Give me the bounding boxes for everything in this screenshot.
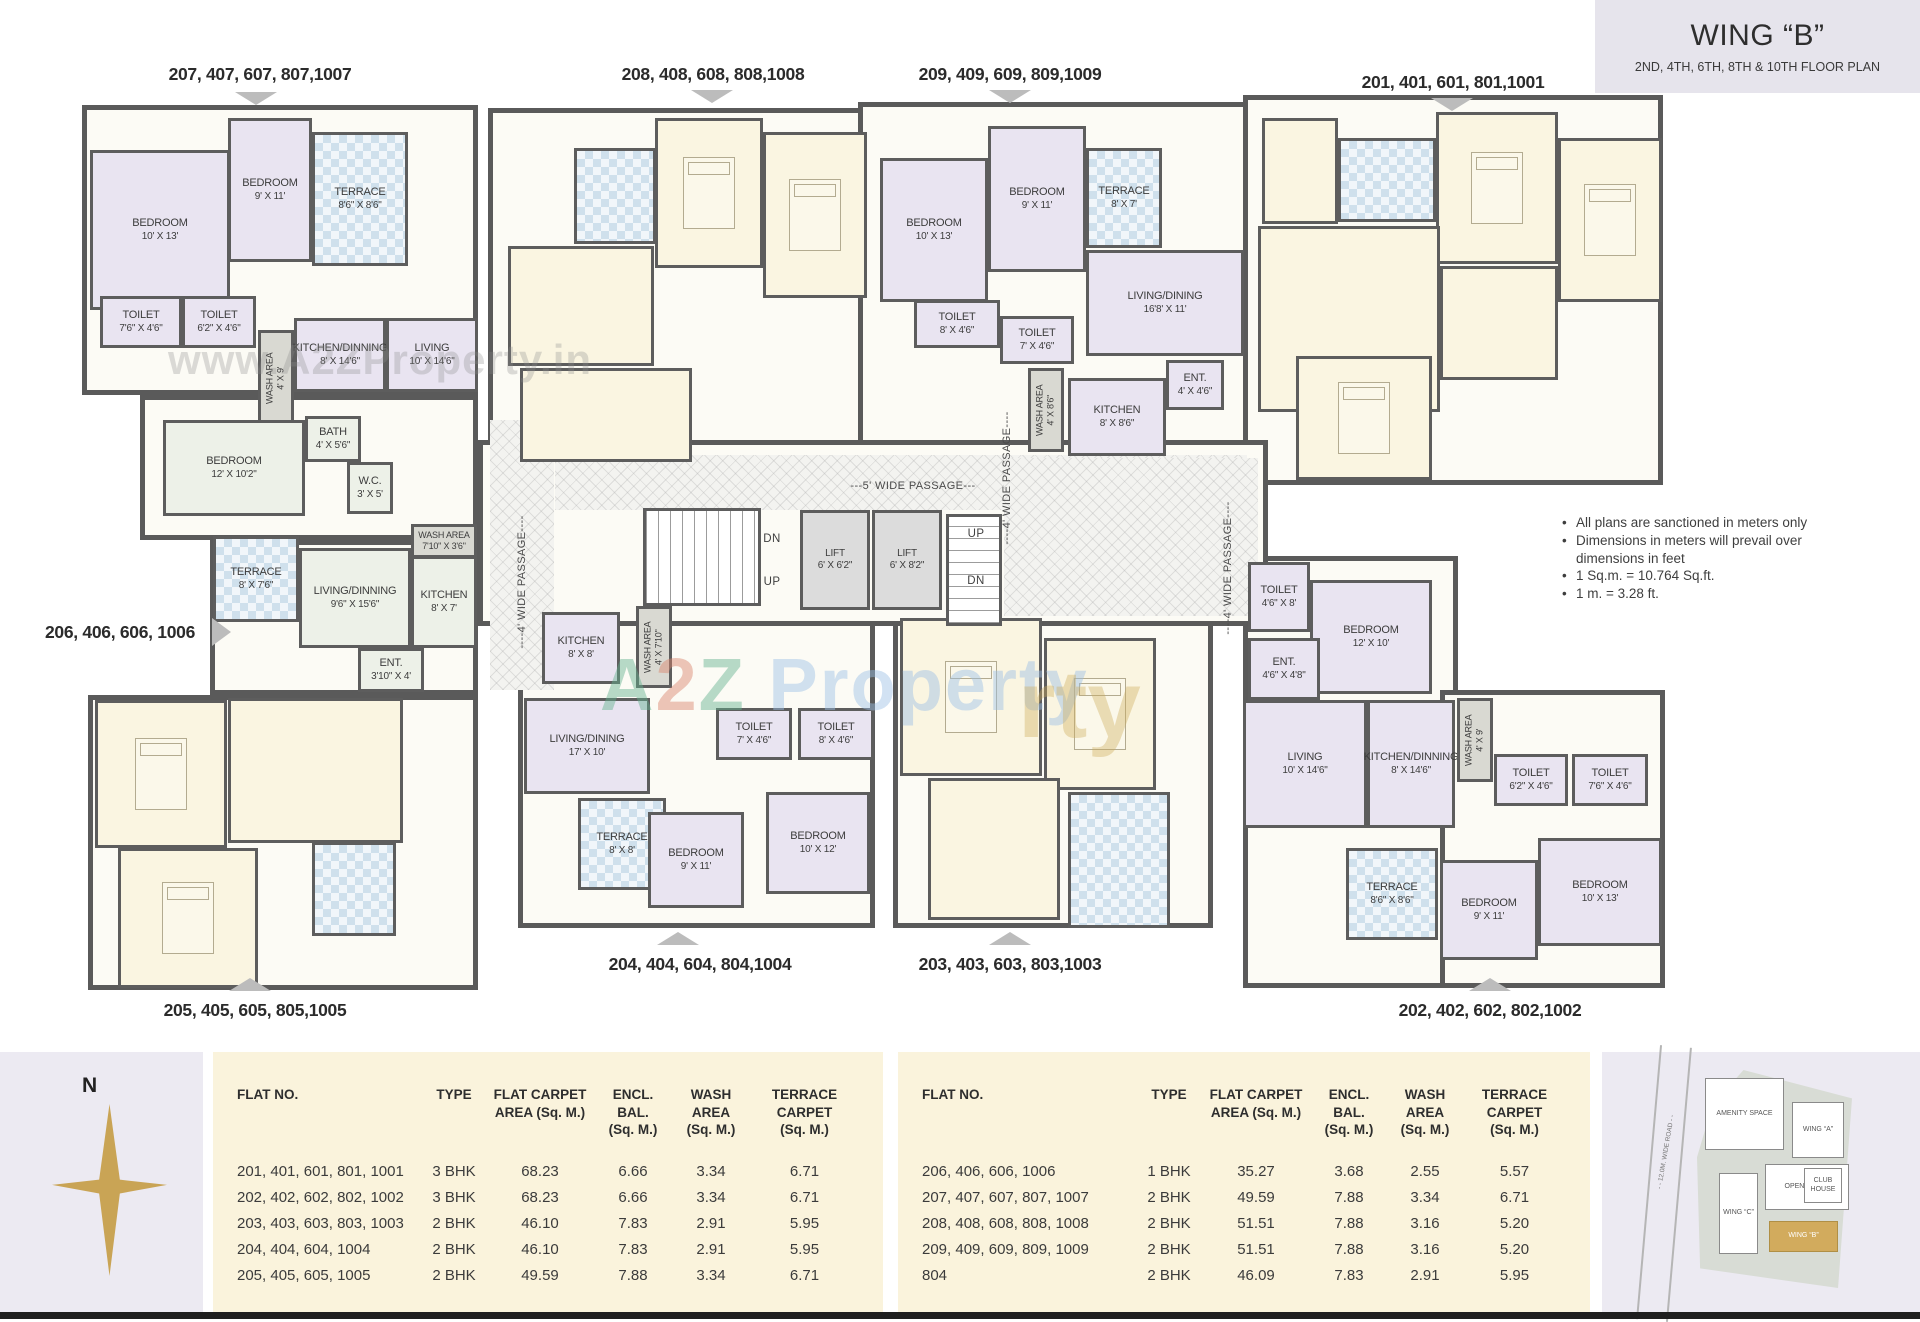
kitchen-202-name: KITCHEN/DINNING	[1364, 751, 1459, 765]
site-road-label: - - 12.0M. WIDE ROAD - -	[1656, 1119, 1675, 1189]
table-header-0: FLAT NO.	[922, 1086, 1137, 1124]
washarea-209-name: WASH AREA	[1035, 384, 1046, 435]
table-cell-r3-c5: 5.95	[750, 1237, 859, 1263]
toilet-209-2: TOILET7' X 4'6"	[1000, 316, 1074, 364]
room-203-3	[928, 778, 1060, 920]
terrace-202-label: TERRACE8'6" X 8'6"	[1366, 881, 1417, 907]
note-line-3: •1 Sq.m. = 10.764 Sq.ft.	[1562, 567, 1902, 585]
terrace-206: TERRACE8' X 7'6"	[213, 536, 299, 622]
table-cell-r0-c5: 5.57	[1463, 1159, 1566, 1185]
bedroom-204-1-label: BEDROOM9' X 11'	[668, 847, 723, 873]
kitchen-206-dim: 8' X 7'	[421, 603, 468, 616]
table-cell-r4-c0: 205, 405, 605, 1005	[237, 1263, 422, 1289]
room-208-1	[655, 118, 763, 268]
table-cell-r2-c1: 2 BHK	[1137, 1211, 1201, 1237]
living-209-dim: 16'8' X 11'	[1127, 304, 1202, 317]
unit-207-arrow-icon	[235, 92, 277, 105]
washarea-206: WASH AREA7'10" X 3'6"	[411, 524, 477, 558]
page-subtitle: 2ND, 4TH, 6TH, 8TH & 10TH FLOOR PLAN	[1635, 60, 1880, 74]
kitchen-202: KITCHEN/DINNING8' X 14'6"	[1367, 700, 1455, 828]
kitchen-204-name: KITCHEN	[558, 635, 605, 649]
bath-206-label: BATH4' X 5'6"	[316, 426, 350, 452]
table-cell-r2-c5: 5.95	[750, 1211, 859, 1237]
bedroom-202-2-dim: 9' X 11'	[1461, 911, 1516, 924]
table-cell-r2-c4: 2.91	[672, 1211, 750, 1237]
toilet-209-2-label: TOILET7' X 4'6"	[1018, 327, 1055, 353]
passage-4ft-right-label: ----4' WIDE PASSAGE----	[1222, 501, 1234, 634]
table-cell-r3-c1: 2 BHK	[422, 1237, 486, 1263]
toilet-202-2-label: TOILET6'2" X 4'6"	[1509, 767, 1552, 793]
terrace-208	[574, 148, 656, 244]
site-road: - - 12.0M. WIDE ROAD - -	[1636, 1045, 1692, 1322]
unit-204-label: 204, 404, 604, 804,1004	[609, 954, 792, 975]
table-cell-r1-c1: 3 BHK	[422, 1185, 486, 1211]
kitchen-206-label: KITCHEN8' X 7'	[421, 589, 468, 615]
room-201-1	[1436, 112, 1558, 264]
living-206-label: LIVING/DINNING9'6" X 15'6"	[314, 585, 397, 611]
lift-1-dim: 6' X 6'2"	[818, 560, 852, 573]
table-header-2: FLAT CARPET AREA (Sq. M.)	[1201, 1086, 1311, 1141]
washarea-206-name: WASH AREA	[418, 530, 469, 541]
unit-205-arrow-icon	[229, 978, 271, 991]
ent-202-dim: 4'6" X 4'8"	[1262, 670, 1305, 683]
bed-icon	[1584, 184, 1636, 256]
table-cell-r0-c3: 3.68	[1311, 1159, 1387, 1185]
table-cell-r1-c5: 6.71	[1463, 1185, 1566, 1211]
wc-206-label: W.C.3' X 5'	[357, 475, 383, 501]
unit-209-arrow-icon	[989, 90, 1031, 103]
flat-table-right: FLAT NO.TYPEFLAT CARPET AREA (Sq. M.)ENC…	[898, 1052, 1590, 1289]
table-cell-r1-c0: 202, 402, 602, 802, 1002	[237, 1185, 422, 1211]
compass-star-icon	[52, 1104, 167, 1276]
table-cell-r3-c0: 204, 404, 604, 1004	[237, 1237, 422, 1263]
bath-206: BATH4' X 5'6"	[305, 416, 361, 462]
bed-icon	[162, 882, 214, 954]
bedroom-209-1-dim: 10' X 13'	[906, 231, 961, 244]
table-cell-r2-c5: 5.20	[1463, 1211, 1566, 1237]
table-cell-r4-c4: 3.34	[672, 1263, 750, 1289]
stairs-left	[643, 508, 761, 606]
site-amenity-space: AMENITY SPACE	[1705, 1078, 1784, 1150]
site-wing-c: WING “C”	[1719, 1173, 1758, 1254]
ent-206: ENT.3'10" X 4'	[358, 648, 424, 692]
table-cell-r4-c3: 7.88	[594, 1263, 672, 1289]
toilet-202-1: TOILET4'6" X 8'	[1248, 562, 1310, 632]
bedroom-209-1: BEDROOM10' X 13'	[880, 158, 988, 302]
table-cell-r0-c1: 1 BHK	[1137, 1159, 1201, 1185]
unit-207-label: 207, 407, 607, 807,1007	[169, 64, 352, 85]
site-map-panel: - - 12.0M. WIDE ROAD - - AMENITY SPACE W…	[1602, 1052, 1920, 1312]
lift-1: LIFT6' X 6'2"	[800, 510, 870, 610]
flat-table-right-panel: FLAT NO.TYPEFLAT CARPET AREA (Sq. M.)ENC…	[898, 1052, 1590, 1312]
wc-206-name: W.C.	[357, 475, 383, 489]
table-cell-r0-c1: 3 BHK	[422, 1159, 486, 1185]
room-208-3	[508, 246, 654, 366]
bedroom-209-2-name: BEDROOM	[1009, 186, 1064, 200]
room-205-2	[118, 848, 258, 988]
table-cell-r1-c1: 2 BHK	[1137, 1185, 1201, 1211]
living-209-name: LIVING/DINING	[1127, 290, 1202, 304]
toilet-204-2-dim: 8' X 4'6"	[817, 735, 854, 748]
bedroom-204-2-label: BEDROOM10' X 12'	[790, 830, 845, 856]
terrace-209-label: TERRACE8' X 7'	[1098, 185, 1149, 211]
terrace-202-name: TERRACE	[1366, 881, 1417, 895]
bedroom-207-2-label: BEDROOM9' X 11'	[242, 177, 297, 203]
table-header-4: WASH AREA (Sq. M.)	[672, 1086, 750, 1159]
room-201-0	[1262, 118, 1338, 224]
toilet-202-2-dim: 6'2" X 4'6"	[1509, 781, 1552, 794]
terrace-204-dim: 8' X 8'	[596, 845, 647, 858]
unit-208-arrow-icon	[691, 90, 733, 103]
table-cell-r3-c0: 209, 409, 609, 809, 1009	[922, 1237, 1137, 1263]
bedroom-209-2-label: BEDROOM9' X 11'	[1009, 186, 1064, 212]
table-cell-r1-c4: 3.34	[672, 1185, 750, 1211]
room-203-1	[900, 618, 1042, 776]
toilet-202-1-label: TOILET4'6" X 8'	[1260, 584, 1297, 610]
toilet-202-3-dim: 7'6" X 4'6"	[1588, 781, 1631, 794]
passage-5ft-label: ---5' WIDE PASSAGE---	[850, 480, 975, 492]
table-cell-r4-c3: 7.83	[1311, 1263, 1387, 1289]
lift-2-name: LIFT	[890, 548, 924, 561]
bedroom-207-2: BEDROOM9' X 11'	[228, 118, 312, 262]
room-205-1	[95, 700, 227, 848]
stairs-dn-right: DN	[967, 575, 984, 587]
flat-table-left: FLAT NO.TYPEFLAT CARPET AREA (Sq. M.)ENC…	[213, 1052, 883, 1289]
bed-icon	[1074, 678, 1126, 750]
stairs-up-right: UP	[968, 528, 985, 540]
bedroom-204-2: BEDROOM10' X 12'	[766, 792, 870, 894]
kitchen-202-label: KITCHEN/DINNING8' X 14'6"	[1364, 751, 1459, 777]
toilet-204-1-label: TOILET7' X 4'6"	[735, 721, 772, 747]
bedroom-207-1-name: BEDROOM	[132, 217, 187, 231]
living-207-label: LIVING10' X 14'6"	[409, 342, 454, 368]
terrace-207-label: TERRACE8'6" X 8'6"	[334, 186, 385, 212]
ent-206-label: ENT.3'10" X 4'	[371, 657, 411, 683]
compass-north-label: N	[82, 1074, 97, 1098]
lift-1-name: LIFT	[818, 548, 852, 561]
table-header-1: TYPE	[1137, 1086, 1201, 1124]
kitchen-207-dim: 8' X 14'6"	[293, 356, 388, 369]
ent-206-dim: 3'10" X 4'	[371, 671, 411, 684]
table-cell-r2-c0: 208, 408, 608, 808, 1008	[922, 1211, 1137, 1237]
washarea-202: WASH AREA4' X 9'	[1457, 698, 1493, 782]
toilet-207-2-dim: 6'2" X 4'6"	[197, 323, 240, 336]
living-204: LIVING/DINING17' X 10'	[524, 698, 650, 794]
ent-209-dim: 4' X 4'6"	[1178, 386, 1212, 399]
toilet-204-1-dim: 7' X 4'6"	[735, 735, 772, 748]
toilet-202-3-name: TOILET	[1588, 767, 1631, 781]
table-cell-r4-c1: 2 BHK	[422, 1263, 486, 1289]
note-bullet: •	[1562, 532, 1576, 550]
terrace-207-name: TERRACE	[334, 186, 385, 200]
terrace-206-name: TERRACE	[230, 566, 281, 580]
note-text: All plans are sanctioned in meters only	[1576, 514, 1807, 532]
toilet-204-1: TOILET7' X 4'6"	[716, 708, 792, 760]
lift-2: LIFT6' X 8'2"	[872, 510, 942, 610]
bedroom-204-2-name: BEDROOM	[790, 830, 845, 844]
toilet-209-1-name: TOILET	[938, 311, 975, 325]
terrace-207: TERRACE8'6" X 8'6"	[312, 132, 408, 266]
kitchen-202-dim: 8' X 14'6"	[1364, 765, 1459, 778]
toilet-202-2: TOILET6'2" X 4'6"	[1494, 754, 1568, 806]
living-202-label: LIVING10' X 14'6"	[1282, 751, 1327, 777]
table-cell-r3-c4: 2.91	[672, 1237, 750, 1263]
site-wing-a: WING “A”	[1792, 1102, 1844, 1158]
toilet-204-2-name: TOILET	[817, 721, 854, 735]
table-cell-r1-c2: 68.23	[486, 1185, 594, 1211]
table-cell-r1-c0: 207, 407, 607, 807, 1007	[922, 1185, 1137, 1211]
room-201-4	[1440, 266, 1558, 380]
bath-206-dim: 4' X 5'6"	[316, 440, 350, 453]
bed-icon	[789, 179, 841, 251]
terrace-205	[312, 842, 396, 936]
table-cell-r0-c2: 35.27	[1201, 1159, 1311, 1185]
living-207-dim: 10' X 14'6"	[409, 356, 454, 369]
bedroom-207-1-label: BEDROOM10' X 13'	[132, 217, 187, 243]
toilet-207-2-name: TOILET	[197, 309, 240, 323]
table-cell-r0-c0: 206, 406, 606, 1006	[922, 1159, 1137, 1185]
table-header-1: TYPE	[422, 1086, 486, 1124]
terrace-206-label: TERRACE8' X 7'6"	[230, 566, 281, 592]
table-cell-r2-c4: 3.16	[1387, 1211, 1463, 1237]
terrace-203	[1068, 792, 1170, 928]
toilet-204-2: TOILET8' X 4'6"	[798, 708, 874, 760]
unit-206-label: 206, 406, 606, 1006	[45, 622, 195, 643]
table-cell-r2-c3: 7.88	[1311, 1211, 1387, 1237]
bedroom-202-2-name: BEDROOM	[1461, 897, 1516, 911]
ent-209-label: ENT.4' X 4'6"	[1178, 372, 1212, 398]
bedroom-207-2-name: BEDROOM	[242, 177, 297, 191]
table-cell-r2-c1: 2 BHK	[422, 1211, 486, 1237]
note-line-4: •1 m. = 3.28 ft.	[1562, 585, 1902, 603]
unit-204-arrow-icon	[657, 932, 699, 945]
toilet-209-1-label: TOILET8' X 4'6"	[938, 311, 975, 337]
living-209-label: LIVING/DINING16'8' X 11'	[1127, 290, 1202, 316]
living-206-dim: 9'6" X 15'6"	[314, 599, 397, 612]
washarea-202-label: WASH AREA4' X 9'	[1464, 714, 1487, 765]
table-cell-r3-c5: 5.20	[1463, 1237, 1566, 1263]
toilet-204-1-name: TOILET	[735, 721, 772, 735]
table-cell-r0-c3: 6.66	[594, 1159, 672, 1185]
toilet-207-2: TOILET6'2" X 4'6"	[182, 296, 256, 348]
note-text: dimensions in feet	[1562, 550, 1685, 568]
note-text: 1 m. = 3.28 ft.	[1576, 585, 1659, 603]
washarea-206-label: WASH AREA7'10" X 3'6"	[418, 530, 469, 553]
kitchen-206-name: KITCHEN	[421, 589, 468, 603]
living-209: LIVING/DINING16'8' X 11'	[1086, 250, 1244, 356]
table-cell-r1-c3: 6.66	[594, 1185, 672, 1211]
note-text: Dimensions in meters will prevail over	[1576, 532, 1802, 550]
bottom-border-bar	[0, 1312, 1920, 1319]
kitchen-209-name: KITCHEN	[1094, 404, 1141, 418]
table-cell-r1-c5: 6.71	[750, 1185, 859, 1211]
living-202-dim: 10' X 14'6"	[1282, 765, 1327, 778]
bed-icon	[1471, 152, 1523, 224]
note-text: 1 Sq.m. = 10.764 Sq.ft.	[1576, 567, 1714, 585]
ent-202-label: ENT.4'6" X 4'8"	[1262, 656, 1305, 682]
bedroom-209-1-name: BEDROOM	[906, 217, 961, 231]
terrace-201	[1338, 138, 1436, 222]
bed-icon	[1338, 382, 1390, 454]
washarea-204: WASH AREA4' X 7'10"	[636, 606, 672, 688]
toilet-209-2-name: TOILET	[1018, 327, 1055, 341]
bedroom-206-label: BEDROOM12' X 10'2"	[206, 455, 261, 481]
terrace-209: TERRACE8' X 7'	[1086, 148, 1162, 248]
table-cell-r2-c2: 51.51	[1201, 1211, 1311, 1237]
toilet-202-1-dim: 4'6" X 8'	[1260, 598, 1297, 611]
bedroom-204-2-dim: 10' X 12'	[790, 844, 845, 857]
kitchen-208	[520, 368, 692, 462]
table-header-0: FLAT NO.	[237, 1086, 422, 1124]
living-202: LIVING10' X 14'6"	[1243, 700, 1367, 828]
living-206: LIVING/DINNING9'6" X 15'6"	[299, 548, 411, 648]
site-club-house: CLUB HOUSE	[1804, 1168, 1842, 1203]
table-cell-r3-c1: 2 BHK	[1137, 1237, 1201, 1263]
kitchen-207-name: KITCHEN/DINNING	[293, 342, 388, 356]
washarea-207-name: WASH AREA	[265, 352, 276, 403]
living-204-label: LIVING/DINING17' X 10'	[549, 733, 624, 759]
bedroom-206-name: BEDROOM	[206, 455, 261, 469]
bedroom-206: BEDROOM12' X 10'2"	[163, 420, 305, 516]
unit-202-label: 202, 402, 602, 802,1002	[1399, 1000, 1582, 1021]
kitchen-209-dim: 8' X 8'6"	[1094, 418, 1141, 431]
bedroom-207-2-dim: 9' X 11'	[242, 191, 297, 204]
bedroom-202-1-dim: 12' X 10'	[1343, 638, 1398, 651]
unit-203-arrow-icon	[989, 932, 1031, 945]
kitchen-209: KITCHEN8' X 8'6"	[1068, 378, 1166, 456]
table-header-5: TERRACE CARPET (Sq. M.)	[750, 1086, 859, 1159]
room-201-5	[1296, 356, 1432, 480]
kitchen-204-dim: 8' X 8'	[558, 649, 605, 662]
living-207-name: LIVING	[409, 342, 454, 356]
table-cell-r3-c3: 7.83	[594, 1237, 672, 1263]
bed-icon	[135, 738, 187, 810]
bath-206-name: BATH	[316, 426, 350, 440]
unit-206-arrow-icon	[212, 618, 231, 646]
living-202-name: LIVING	[1282, 751, 1327, 765]
bedroom-202-2-label: BEDROOM9' X 11'	[1461, 897, 1516, 923]
washarea-209: WASH AREA4' X 8'6"	[1028, 368, 1064, 452]
hatch-passage-right	[1004, 458, 1258, 616]
wc-206-dim: 3' X 5'	[357, 489, 383, 502]
unit-208-label: 208, 408, 608, 808,1008	[622, 64, 805, 85]
note-bullet: •	[1562, 585, 1576, 603]
washarea-209-label: WASH AREA4' X 8'6"	[1035, 384, 1058, 435]
washarea-204-name: WASH AREA	[643, 621, 654, 672]
compass-panel: N	[0, 1052, 203, 1312]
bedroom-202-1-label: BEDROOM12' X 10'	[1343, 624, 1398, 650]
toilet-202-3: TOILET7'6" X 4'6"	[1572, 754, 1648, 806]
toilet-202-3-label: TOILET7'6" X 4'6"	[1588, 767, 1631, 793]
table-cell-r3-c2: 51.51	[1201, 1237, 1311, 1263]
ent-202-name: ENT.	[1262, 656, 1305, 670]
bedroom-202-3-name: BEDROOM	[1572, 879, 1627, 893]
unit-201-label: 201, 401, 601, 801,1001	[1362, 72, 1545, 93]
wc-206: W.C.3' X 5'	[347, 462, 393, 514]
bedroom-207-1-dim: 10' X 13'	[132, 231, 187, 244]
bedroom-204-1-dim: 9' X 11'	[668, 861, 723, 874]
table-cell-r4-c2: 49.59	[486, 1263, 594, 1289]
unit-201-arrow-icon	[1431, 98, 1473, 111]
washarea-204-label: WASH AREA4' X 7'10"	[643, 621, 666, 672]
terrace-204-label: TERRACE8' X 8'	[596, 831, 647, 857]
table-cell-r1-c4: 3.34	[1387, 1185, 1463, 1211]
ent-202: ENT.4'6" X 4'8"	[1248, 638, 1320, 700]
kitchen-209-label: KITCHEN8' X 8'6"	[1094, 404, 1141, 430]
kitchen-204: KITCHEN8' X 8'	[542, 612, 620, 684]
bedroom-204-1-name: BEDROOM	[668, 847, 723, 861]
washarea-206-dim: 7'10" X 3'6"	[418, 541, 469, 552]
stairs-dn-left: DN	[763, 533, 780, 545]
unit-209-label: 209, 409, 609, 809,1009	[919, 64, 1102, 85]
table-header-2: FLAT CARPET AREA (Sq. M.)	[486, 1086, 594, 1141]
flat-table-left-panel: FLAT NO.TYPEFLAT CARPET AREA (Sq. M.)ENC…	[213, 1052, 883, 1312]
table-cell-r3-c4: 3.16	[1387, 1237, 1463, 1263]
toilet-202-1-name: TOILET	[1260, 584, 1297, 598]
toilet-209-2-dim: 7' X 4'6"	[1018, 341, 1055, 354]
table-cell-r0-c4: 3.34	[672, 1159, 750, 1185]
kitchen-207: KITCHEN/DINNING8' X 14'6"	[294, 318, 386, 392]
bedroom-202-3: BEDROOM10' X 13'	[1538, 838, 1662, 946]
terrace-204-name: TERRACE	[596, 831, 647, 845]
passage-4ft-left-label: ----4' WIDE PASSAGE----	[516, 515, 528, 648]
bedroom-206-dim: 12' X 10'2"	[206, 469, 261, 482]
unit-203-label: 203, 403, 603, 803,1003	[919, 954, 1102, 975]
washarea-207-dim: 4' X 9'	[276, 352, 287, 403]
table-cell-r1-c3: 7.88	[1311, 1185, 1387, 1211]
kitchen-207-label: KITCHEN/DINNING8' X 14'6"	[293, 342, 388, 368]
kitchen-206: KITCHEN8' X 7'	[411, 556, 477, 648]
terrace-209-name: TERRACE	[1098, 185, 1149, 199]
room-208-2	[763, 132, 867, 298]
terrace-209-dim: 8' X 7'	[1098, 199, 1149, 212]
toilet-209-1: TOILET8' X 4'6"	[914, 300, 1000, 348]
washarea-207-label: WASH AREA4' X 9'	[265, 352, 288, 403]
bed-icon	[683, 157, 735, 229]
toilet-207-1-label: TOILET7'6" X 4'6"	[119, 309, 162, 335]
note-bullet: •	[1562, 567, 1576, 585]
table-header-3: ENCL. BAL. (Sq. M.)	[594, 1086, 672, 1159]
room-203-2	[1044, 638, 1156, 790]
table-header-5: TERRACE CARPET (Sq. M.)	[1463, 1086, 1566, 1159]
washarea-202-name: WASH AREA	[1464, 714, 1475, 765]
table-cell-r2-c2: 46.10	[486, 1211, 594, 1237]
ent-206-name: ENT.	[371, 657, 411, 671]
table-cell-r3-c2: 46.10	[486, 1237, 594, 1263]
terrace-202: TERRACE8'6" X 8'6"	[1346, 848, 1438, 940]
toilet-204-2-label: TOILET8' X 4'6"	[817, 721, 854, 747]
plan-notes: •All plans are sanctioned in meters only…	[1562, 514, 1902, 603]
bedroom-202-1-name: BEDROOM	[1343, 624, 1398, 638]
toilet-207-1-dim: 7'6" X 4'6"	[119, 323, 162, 336]
wing-title-box: WING “B” 2ND, 4TH, 6TH, 8TH & 10TH FLOOR…	[1595, 0, 1920, 93]
terrace-206-dim: 8' X 7'6"	[230, 580, 281, 593]
page-title: WING “B”	[1691, 19, 1825, 53]
washarea-209-dim: 4' X 8'6"	[1046, 384, 1057, 435]
kitchen-204-label: KITCHEN8' X 8'	[558, 635, 605, 661]
living-207: LIVING10' X 14'6"	[386, 318, 478, 392]
bedroom-209-2: BEDROOM9' X 11'	[988, 126, 1086, 272]
washarea-202-dim: 4' X 9'	[1475, 714, 1486, 765]
note-bullet: •	[1562, 514, 1576, 532]
table-cell-r0-c4: 2.55	[1387, 1159, 1463, 1185]
room-201-2	[1558, 138, 1662, 302]
table-cell-r2-c3: 7.83	[594, 1211, 672, 1237]
note-line-1: •Dimensions in meters will prevail over	[1562, 532, 1902, 550]
table-cell-r0-c0: 201, 401, 601, 801, 1001	[237, 1159, 422, 1185]
table-cell-r2-c0: 203, 403, 603, 803, 1003	[237, 1211, 422, 1237]
table-header-3: ENCL. BAL. (Sq. M.)	[1311, 1086, 1387, 1159]
